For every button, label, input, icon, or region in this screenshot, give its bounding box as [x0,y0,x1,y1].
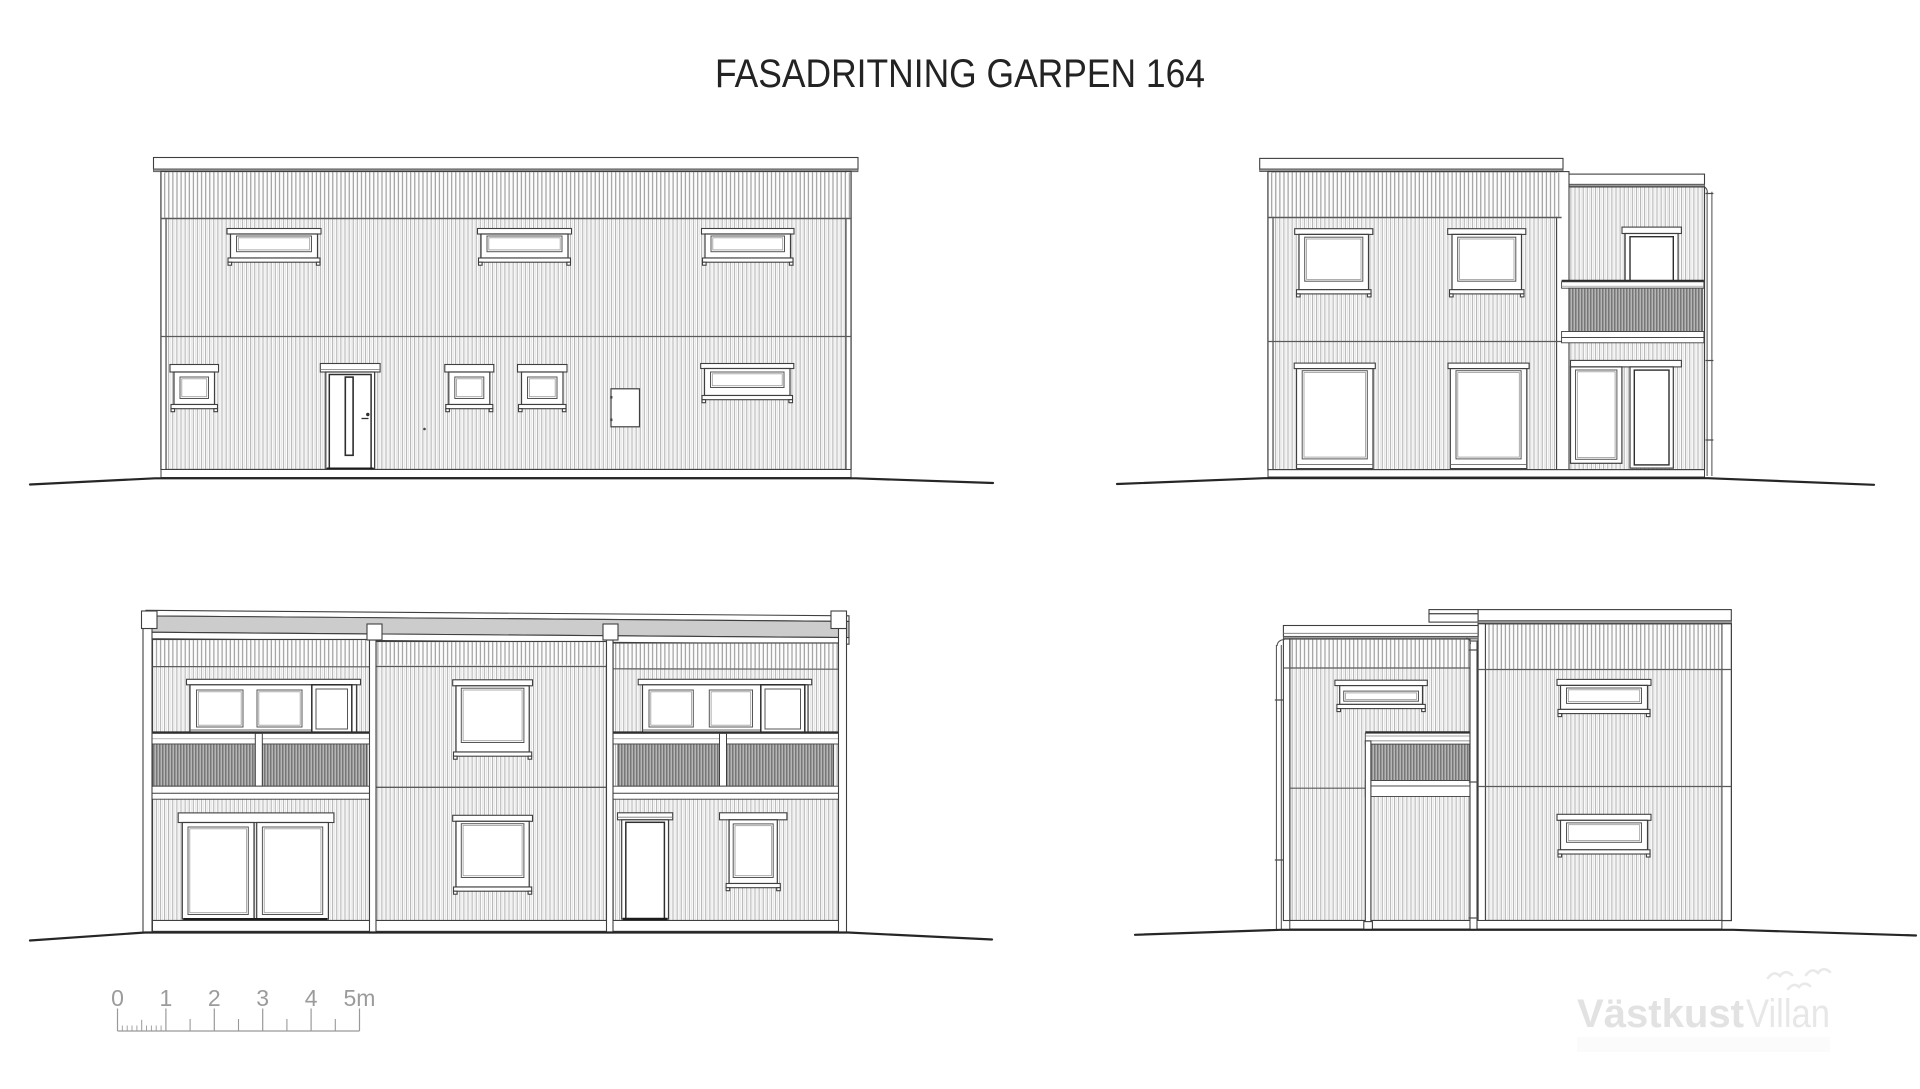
svg-text:5m: 5m [344,985,376,1011]
svg-text:Västkust: Västkust [1577,992,1744,1036]
svg-text:Villan: Villan [1746,992,1830,1036]
svg-text:0: 0 [111,985,124,1011]
svg-text:FASADRITNING GARPEN 164: FASADRITNING GARPEN 164 [715,52,1205,96]
svg-text:4: 4 [305,985,318,1011]
svg-text:3: 3 [256,985,269,1011]
svg-text:1: 1 [160,985,173,1011]
svg-text:2: 2 [208,985,221,1011]
